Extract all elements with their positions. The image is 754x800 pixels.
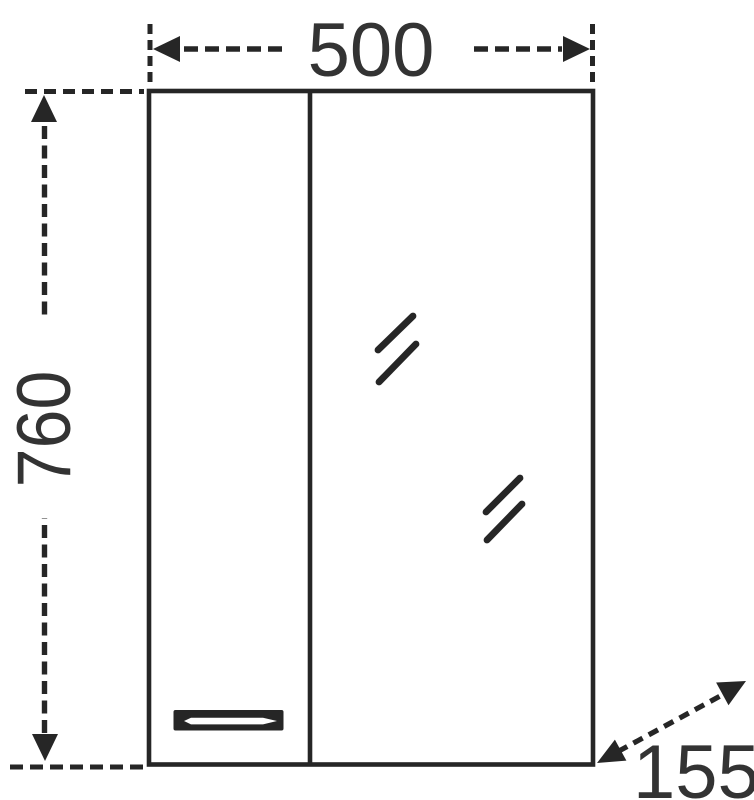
svg-text:155: 155 [633,730,754,800]
svg-text:500: 500 [308,8,435,93]
svg-text:760: 760 [2,371,86,488]
